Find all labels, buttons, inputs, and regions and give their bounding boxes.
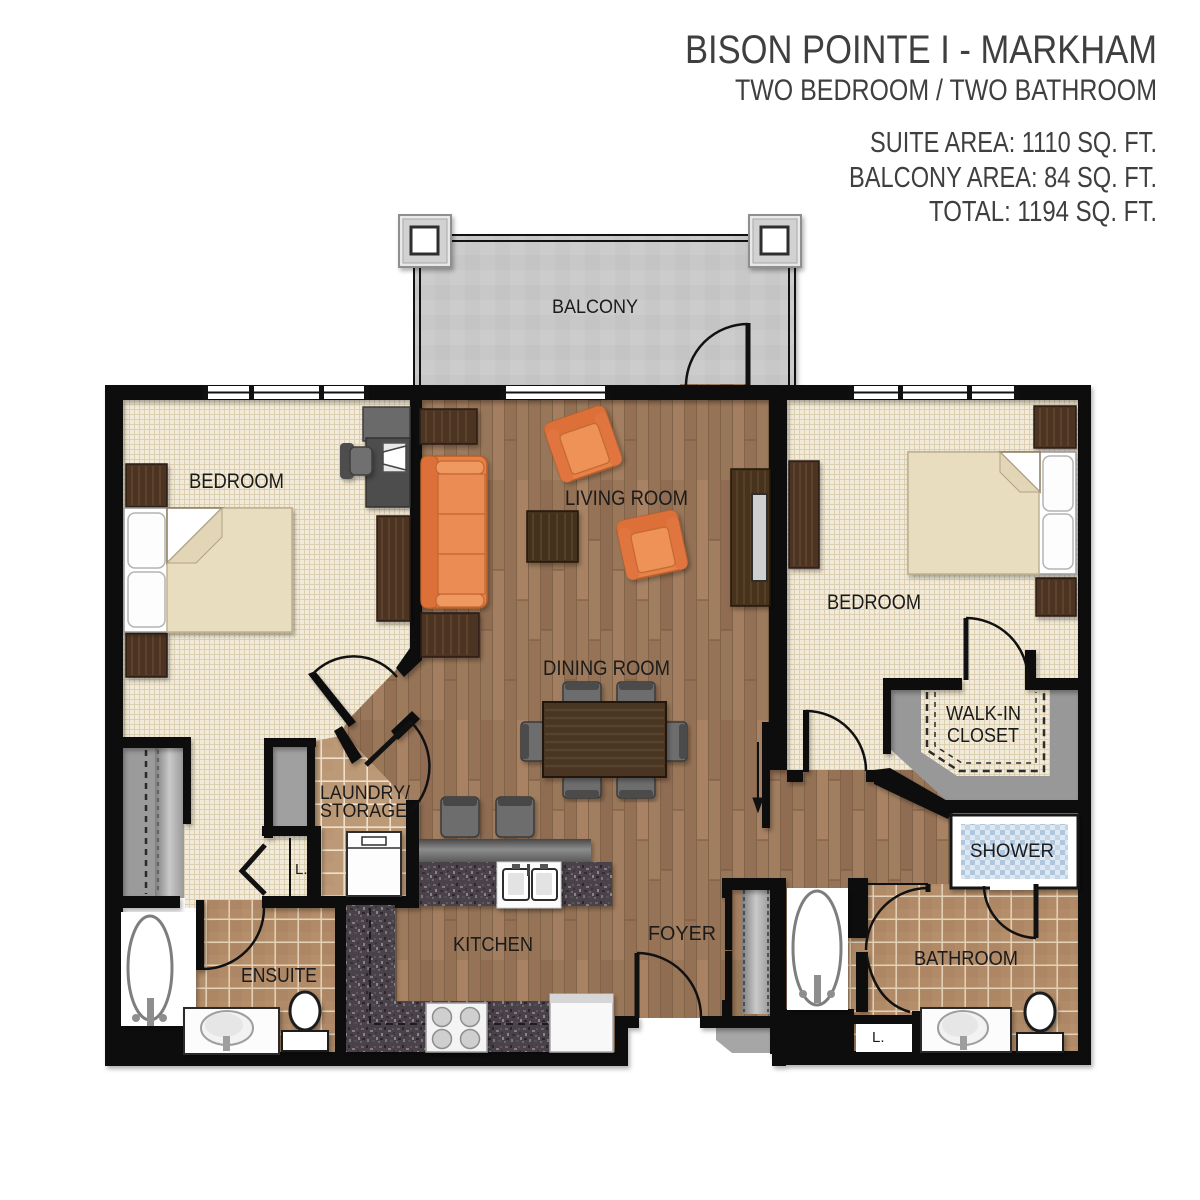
svg-text:BALCONY AREA: 84 SQ. FT.: BALCONY AREA: 84 SQ. FT. (849, 162, 1157, 194)
svg-text:L.: L. (872, 1029, 885, 1046)
svg-text:FOYER: FOYER (648, 923, 716, 945)
svg-text:BATHROOM: BATHROOM (914, 948, 1018, 970)
svg-text:CLOSET: CLOSET (947, 725, 1019, 747)
svg-text:STORAGE: STORAGE (320, 801, 407, 822)
svg-text:SUITE AREA: 1110 SQ. FT.: SUITE AREA: 1110 SQ. FT. (870, 127, 1157, 159)
svg-text:BALCONY: BALCONY (552, 296, 638, 318)
svg-text:L.: L. (295, 861, 308, 878)
svg-text:BEDROOM: BEDROOM (827, 591, 921, 614)
svg-text:BEDROOM: BEDROOM (189, 470, 284, 493)
svg-text:ENSUITE: ENSUITE (241, 965, 317, 987)
svg-text:DINING ROOM: DINING ROOM (543, 657, 670, 680)
svg-text:TOTAL: 1194 SQ. FT.: TOTAL: 1194 SQ. FT. (929, 196, 1157, 228)
svg-text:SHOWER: SHOWER (970, 841, 1054, 862)
svg-text:LIVING ROOM: LIVING ROOM (565, 487, 688, 510)
svg-text:WALK-IN: WALK-IN (946, 703, 1021, 725)
svg-text:TWO BEDROOM / TWO BATHROOM: TWO BEDROOM / TWO BATHROOM (735, 74, 1157, 107)
svg-text:BISON POINTE I - MARKHAM: BISON POINTE I - MARKHAM (685, 28, 1157, 72)
svg-text:KITCHEN: KITCHEN (453, 934, 533, 956)
